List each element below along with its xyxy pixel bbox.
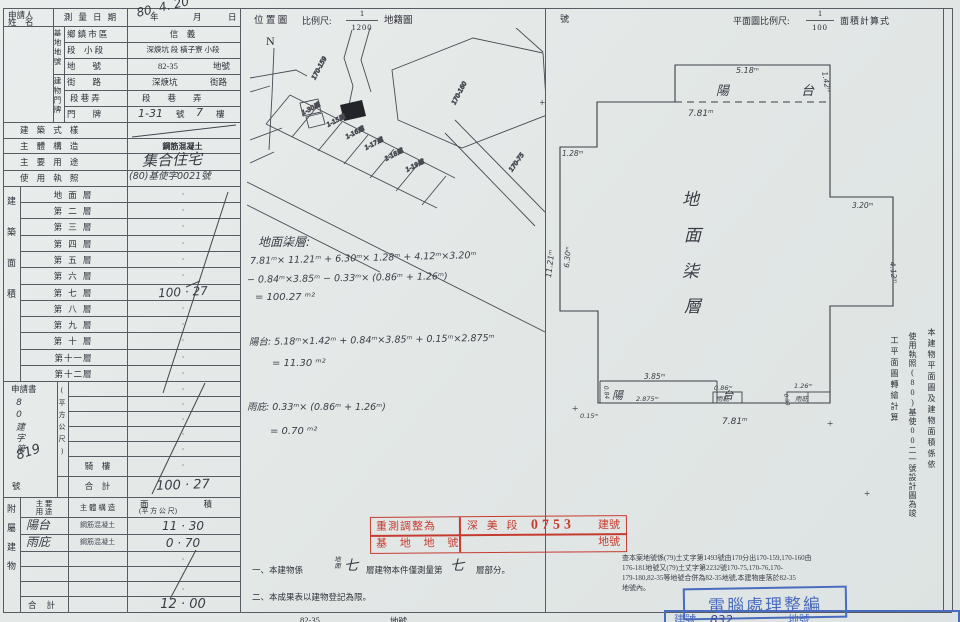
area-total-label: 合 計 xyxy=(70,482,125,491)
vertical-note-col2: 使用執照(80)基使00二一號設計圖為竣 xyxy=(908,332,916,552)
floor-row-value: · xyxy=(128,353,238,362)
canopy-label: 雨庇 xyxy=(716,395,731,403)
stamp-building-no-suffix: 建號 xyxy=(598,520,620,531)
floor-row-value: · xyxy=(128,222,238,231)
application-hand-prefix: 80建字第 xyxy=(14,398,23,448)
floor-row-label: 第 十 層 xyxy=(22,337,125,346)
stamp-resurvey-label: 重測調整為 xyxy=(376,521,436,532)
main-use-value: 集合住宅 xyxy=(142,152,203,169)
floor7-area-value: 100 · 27 xyxy=(128,283,238,301)
bottom-building-no-hand: 832 xyxy=(710,614,733,622)
note1-hand-floor2: 七 xyxy=(450,559,464,573)
annex-header-use-2: 用 途 xyxy=(22,508,66,516)
lane-value: 段 巷 弄 xyxy=(142,94,202,103)
base-parcel-group-label: 基地地號 xyxy=(54,29,62,73)
doorno-floor: 7 xyxy=(196,107,203,118)
annex-header-area-2: (平 方 公 尺) xyxy=(139,508,177,515)
dim-label: 0.15ᵐ xyxy=(580,412,599,420)
parcel-label: 170-160 xyxy=(451,80,469,106)
applicant-label-2: 姓 名 xyxy=(8,18,34,27)
floor-row-value: · xyxy=(128,369,238,378)
lot-label: 1-19建 xyxy=(404,157,426,174)
annex-row-area: · xyxy=(128,555,238,564)
annex-row-use: 陽台 xyxy=(26,519,50,531)
register-cross: + xyxy=(572,403,578,415)
bottom-blue-row: 建號 832 地號 xyxy=(664,610,960,622)
note1-part-b: 層建物本件僅測量第 xyxy=(366,566,443,575)
cadastre-map-label: 地籍圖 xyxy=(384,17,413,27)
bottom-fragment-parcel: 82-35 xyxy=(300,616,320,622)
floor-row-label: 第 四 層 xyxy=(22,240,125,249)
note1-hand-floor: 七 xyxy=(344,559,358,573)
arcade-label: 騎 樓 xyxy=(70,462,125,471)
survey-month: 月 xyxy=(193,13,202,22)
doorno-suffix-lou: 樓 xyxy=(216,110,225,119)
application-hao: 號 xyxy=(12,482,21,491)
calc-canopy-line1: 雨庇: 0.33ᵐ× (0.86ᵐ + 1.26ᵐ) xyxy=(247,403,386,413)
floor-row-label: 第 五 層 xyxy=(22,256,125,265)
area-calc-label: 面積計算式 xyxy=(840,17,890,26)
parcel-value: 82-35 xyxy=(158,62,178,71)
note1-hand-small: 地面 xyxy=(333,556,340,572)
bottom-parcel-label: 地號 xyxy=(788,615,810,622)
floor-row-value: · xyxy=(128,336,238,345)
dim-label: 0.33 xyxy=(782,393,790,407)
dim-label: 3.85ᵐ xyxy=(644,372,666,381)
district-label: 鄉 鎮 市 區 xyxy=(67,30,107,39)
bottom-building-no-label: 建號 xyxy=(674,615,696,622)
survey-date-label: 測 量 日 期 xyxy=(56,13,126,22)
main-use-label: 主 要 用 途 xyxy=(20,158,81,167)
annex-row-area: · xyxy=(128,585,238,594)
register-cross: + xyxy=(864,488,870,500)
location-scale-label: 比例尺: xyxy=(302,17,332,26)
remark-line: 179-180,82-35等地號合併為82-35地號,本建物座落於82-35 xyxy=(622,573,956,583)
door-plate-group-label: 建物門牌 xyxy=(54,77,62,121)
lot-label: 1-16建 xyxy=(344,124,366,141)
floor-row-value: · xyxy=(128,239,238,248)
floor-row-value: · xyxy=(128,255,238,264)
floor-row-value: · xyxy=(128,304,238,313)
resurvey-red-stamp: 重測調整為 深 美 段 0753 建號 基 地 地 號 地號 xyxy=(370,515,627,554)
hao-label: 號 xyxy=(560,15,569,24)
annex-row-structure: 鋼筋混凝土 xyxy=(70,539,125,546)
canopy-label: 雨庇 xyxy=(795,395,810,403)
floor-row-value: · xyxy=(128,206,238,215)
balcony-bottom-label: 陽 台 xyxy=(612,389,782,402)
remark-line: 查本案地號係(79)土丈字第1493號由170分出170-159,170-160… xyxy=(622,553,956,563)
parcel-label: 170-75 xyxy=(508,152,526,174)
street-label: 街 路 xyxy=(67,78,101,87)
survey-date-handwritten: 80. 4. 20 xyxy=(135,0,190,19)
calc-balcony-result: = 11.30 ᵐ² xyxy=(272,359,326,369)
district-value: 信 義 xyxy=(130,30,235,39)
building-area-group-label: 建築面積 xyxy=(6,196,15,368)
vertical-note-col1: 本建物平面圖及建物面積係依 xyxy=(927,328,935,548)
floor-row-value: · xyxy=(128,320,238,329)
floor-row-label: 第 九 層 xyxy=(22,321,125,330)
parcel-label: 地 號 xyxy=(67,62,101,71)
calc-canopy-result: = 0.70 ᵐ² xyxy=(270,427,317,437)
dim-label: 5.18ᵐ xyxy=(736,66,759,75)
calc-floor-title: 地面柒層: xyxy=(258,236,310,248)
license-value: (80)基使字0021號 xyxy=(129,172,211,182)
dim-label: 1.26ᵐ xyxy=(794,382,813,390)
annex-header-structure: 主 體 構 造 xyxy=(70,504,125,512)
annex-total-label: 合 計 xyxy=(28,601,59,610)
floor-row-value: · xyxy=(128,430,238,439)
annex-total-value: 12 · 00 xyxy=(128,598,238,611)
annex-row-structure: 鋼筋混凝土 xyxy=(70,522,125,529)
dim-label: 4.12ᵐ xyxy=(888,261,899,283)
lot-label: 1-18建 xyxy=(383,146,405,163)
stamp-base-parcel-label: 基 地 地 號 xyxy=(376,538,463,550)
stamp-parcel-suffix: 地號 xyxy=(598,537,620,548)
note1-part-a: 一、本建物係 xyxy=(252,566,303,575)
doorno-suffix-hao: 號 xyxy=(176,110,185,119)
stamp-new-building-number: 0753 xyxy=(531,518,575,532)
floor-row-label: 第 八 層 xyxy=(22,305,125,314)
calc-floor-result: = 100.27 ᵐ² xyxy=(255,293,315,303)
dim-label: 7.81ᵐ xyxy=(688,109,714,119)
floor-row-value: · xyxy=(128,445,238,454)
vertical-note-col3: 工平面圖轉繪計算 xyxy=(890,336,898,486)
bottom-fragment-label: 地號 xyxy=(390,617,407,622)
area-total-value: 100 · 27 xyxy=(128,477,238,494)
note1-part-c: 層部分。 xyxy=(476,566,510,575)
application-box-title: 申請書 xyxy=(11,385,37,394)
parcel-suffix: 地號 xyxy=(213,62,230,71)
balcony-top-label: 陽 台 xyxy=(716,84,848,99)
floor-row-value: · xyxy=(128,271,238,280)
floor-row-label: 第 七 層 xyxy=(22,289,125,298)
survey-day: 日 xyxy=(228,13,237,22)
floor-row-label: 第 二 層 xyxy=(22,207,125,216)
annex-group-label: 附屬建物 xyxy=(6,504,15,608)
floor-plan-title-char: 面 xyxy=(684,226,704,246)
arcade-value: · xyxy=(128,461,238,470)
stamp-new-section: 深 美 段 xyxy=(467,521,521,532)
floor-plan-title-char: 地 xyxy=(682,190,701,210)
section-label: 段 小 段 xyxy=(67,46,103,55)
dim-label: 7.81ᵐ xyxy=(722,417,748,427)
section-value: 深焿坑 段 橫子寮 小段 xyxy=(128,46,238,54)
register-cross: + xyxy=(540,97,545,109)
building-style-label: 建 築 式 樣 xyxy=(20,126,81,135)
dim-label: 0.84 xyxy=(602,386,610,400)
dim-label: 1.28ᵐ xyxy=(562,149,584,158)
annex-row-area: 11 · 30 xyxy=(128,520,238,532)
annex-row-use: 雨庇 xyxy=(26,536,50,548)
floor-row-label: 第十一層 xyxy=(22,354,125,363)
street-value: 深焿坑 xyxy=(152,78,178,87)
floor-plan-title-char: 柒 xyxy=(682,262,701,282)
building-area-unit-label: (平方公尺) xyxy=(58,386,65,478)
annex-row-area: 0 · 70 xyxy=(128,537,238,549)
floor-plan-title-char: 層 xyxy=(684,297,703,317)
floor-row-value: · xyxy=(128,400,238,409)
license-label: 使 用 執 照 xyxy=(20,174,81,183)
dim-label: 3.20ᵐ xyxy=(852,201,874,210)
plan-scale-label: 平面圖比例尺: xyxy=(733,17,790,26)
remark-line: 176-181地號又(79)土丈字第2232號170-75,170-76,170… xyxy=(622,563,956,573)
parcel-label: 170-159 xyxy=(311,55,329,81)
register-cross: + xyxy=(827,418,833,430)
floor-row-value: · xyxy=(128,385,238,394)
scanned-building-survey-form: 申請人 姓 名 測 量 日 期 年 月 日 80. 4. 20 基地地號 鄉 鎮… xyxy=(0,0,960,622)
street-suffix: 街路 xyxy=(210,78,227,87)
main-structure-label: 主 體 構 造 xyxy=(20,142,81,151)
note2: 二、本成果表以建物登記為限。 xyxy=(252,593,371,602)
dim-label: 11.21ᵐ xyxy=(544,249,556,278)
floor-row-label: 第 三 層 xyxy=(22,223,125,232)
floor-row-value: · xyxy=(128,190,238,199)
annex-row-area: · xyxy=(128,570,238,579)
dim-label: 6.30ᵐ xyxy=(562,246,573,268)
floor-row-label: 地 面 層 xyxy=(22,191,125,200)
doorno-label: 門 牌 xyxy=(67,110,101,119)
floor-row-value: · xyxy=(128,415,238,424)
floor-row-label: 第 六 層 xyxy=(22,272,125,281)
doorno-value: 1-31 xyxy=(138,108,163,119)
location-map-title: 位 置 圖 xyxy=(254,17,287,27)
lane-label: 段 巷 弄 xyxy=(70,94,100,103)
floor-row-label: 第十二層 xyxy=(22,370,125,379)
